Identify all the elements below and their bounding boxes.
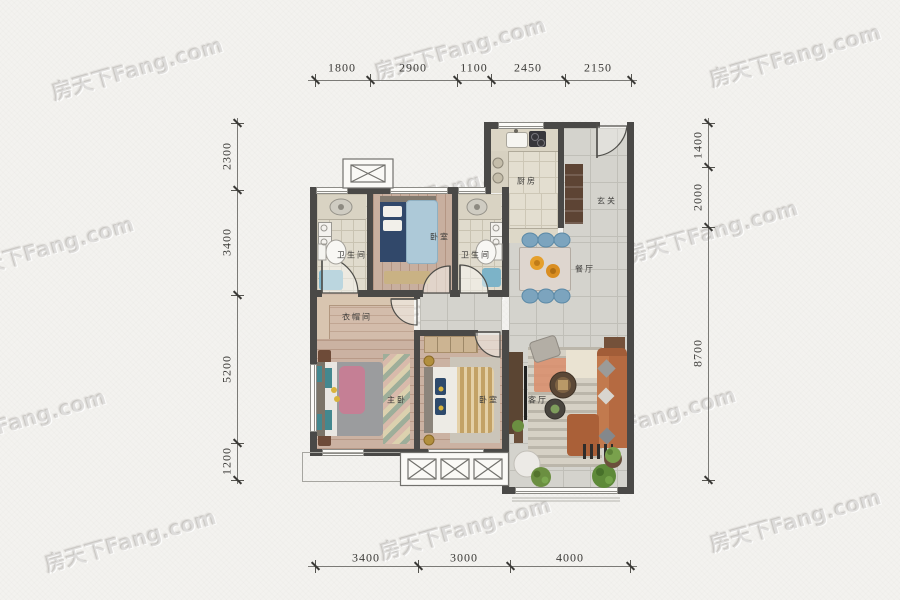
room-label-kitchen: 厨房 [517, 176, 537, 187]
dim-label: 2150 [584, 61, 612, 76]
dining-table [519, 247, 571, 291]
kitchen-sink [506, 132, 528, 148]
watermark: 房天下Fang.com [706, 16, 884, 94]
navy-pillow [435, 378, 446, 395]
room-label-bedroom-top: 卧室 [430, 232, 450, 243]
washer-box [318, 236, 332, 251]
dim-label: 2300 [220, 142, 235, 170]
navy-pillow [435, 398, 446, 415]
wall [627, 122, 634, 494]
watermark: 房天下Fang.com [706, 481, 884, 559]
bath-right-counter [459, 195, 501, 220]
window [322, 449, 364, 456]
dimension-line-right [708, 118, 709, 484]
striped-mat [583, 444, 613, 459]
rug-accent [534, 358, 568, 392]
pillow [383, 220, 402, 231]
room-label-dining: 餐厅 [575, 264, 595, 275]
wall [420, 330, 478, 336]
dim-label: 1800 [328, 61, 356, 76]
window-sill-lines [512, 498, 620, 501]
wall [502, 330, 509, 494]
dim-label: 3400 [352, 551, 380, 566]
teal-pillow [325, 410, 332, 430]
bath-left-counter [318, 195, 366, 220]
wall [414, 330, 420, 455]
wall [484, 449, 509, 456]
wall [558, 122, 564, 228]
wall [450, 290, 460, 297]
wall [558, 122, 600, 128]
wall [310, 290, 322, 297]
dim-label: 4000 [556, 551, 584, 566]
corridor-floor [420, 293, 502, 335]
room-label-bath-right: 卫生间 [461, 250, 491, 261]
window [458, 187, 486, 194]
dim-label: 1200 [220, 447, 235, 475]
shower-mat [482, 268, 501, 287]
dimension-line-top [308, 80, 637, 81]
curtain [317, 414, 322, 430]
floor-plan-page: 房天下Fang.com 房天下Fang.com 房天下Fang.com 房天下F… [0, 0, 900, 600]
watermark: 房天下Fang.com [48, 29, 226, 107]
window [390, 187, 448, 194]
wall [502, 487, 515, 494]
window [428, 449, 484, 456]
watermark: 房天下Fang.com [0, 208, 137, 286]
window [316, 187, 348, 194]
wall [310, 449, 322, 456]
room-label-foyer: 玄关 [597, 196, 617, 207]
shower-mat [319, 270, 343, 290]
wall [364, 449, 428, 456]
dim-label: 3400 [220, 228, 235, 256]
teal-pillow [325, 368, 332, 388]
dim-label: 2900 [399, 61, 427, 76]
pink-blanket [339, 366, 365, 414]
stove [529, 131, 546, 147]
wall [618, 487, 634, 494]
dim-label: 1100 [460, 61, 488, 76]
dimension-line-bottom [308, 566, 637, 567]
washer-box [318, 222, 332, 237]
rug-accent [566, 350, 600, 378]
ac-platform-top [343, 159, 393, 188]
room-label-bath-left: 卫生间 [337, 250, 367, 261]
closet-shelf [317, 305, 330, 339]
pillow [383, 206, 402, 217]
dim-label: 2000 [691, 183, 706, 211]
watermark: 房天下Fang.com [0, 381, 109, 459]
tv [524, 366, 527, 420]
bed-headboard [424, 367, 433, 433]
room-label-closet: 衣帽间 [342, 312, 372, 323]
dim-label: 8700 [691, 339, 706, 367]
room-label-bedroom-second: 卧室 [479, 395, 499, 406]
balcony-outline [303, 453, 402, 482]
dim-label: 1400 [691, 131, 706, 159]
dim-label: 3000 [450, 551, 478, 566]
dim-label: 2450 [514, 61, 542, 76]
dim-label: 5200 [220, 355, 235, 383]
wall [502, 187, 509, 295]
tv-cabinet [509, 352, 523, 434]
wall [488, 290, 509, 297]
wall [414, 290, 420, 299]
dimension-line-left [237, 118, 238, 484]
window [498, 122, 544, 129]
kitchen-counter-lower [509, 228, 558, 243]
wall [484, 122, 491, 194]
wardrobe [424, 336, 478, 353]
window [310, 364, 317, 432]
ac-platform-bottom [401, 453, 509, 486]
wall [452, 187, 458, 290]
shoe-cabinet [565, 164, 583, 224]
room-label-master: 主卧 [387, 395, 407, 406]
watermark: 房天下Fang.com [41, 501, 219, 579]
wall [367, 187, 373, 290]
window [515, 487, 618, 494]
room-label-living: 客厅 [528, 395, 548, 406]
bed-bench [384, 271, 430, 284]
curtain [317, 366, 322, 382]
